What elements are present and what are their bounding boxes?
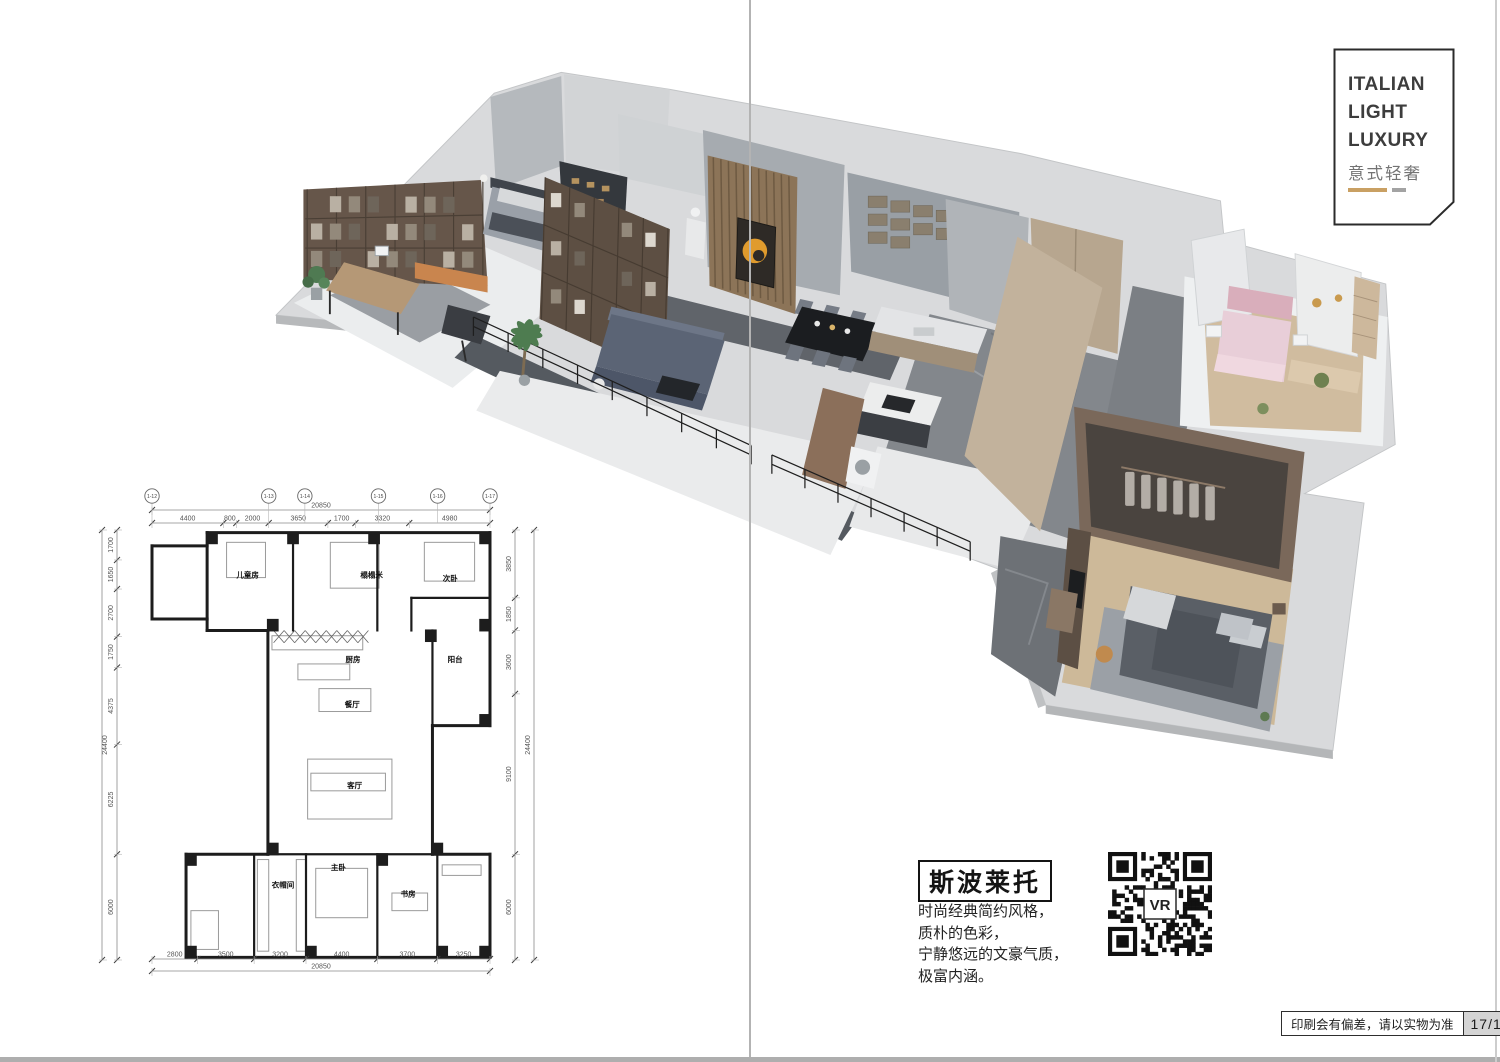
svg-text:3700: 3700 [400,952,416,959]
svg-text:3650: 3650 [291,516,307,523]
room-label: 衣帽间 [272,880,295,890]
svg-text:20850: 20850 [311,964,331,971]
svg-text:24400: 24400 [102,735,109,755]
svg-text:6000: 6000 [506,899,513,915]
vr-label: VR [1150,897,1171,914]
floor-plan-drawing: 儿童房榻榻米次卧厨房阳台餐厅客厅衣帽间主卧书房44008002000365017… [80,470,560,1010]
svg-text:4980: 4980 [442,516,458,523]
room-label: 榻榻米 [360,570,383,580]
product-desc-line: 质朴的色彩， [918,923,1068,945]
svg-text:1850: 1850 [506,606,513,622]
title-line1: ITALIAN [1348,74,1425,96]
svg-text:9100: 9100 [506,766,513,782]
accent-bar-gray [1392,188,1406,192]
product-desc-line: 宁静悠远的文豪气质， [918,944,1068,966]
svg-text:1-14: 1-14 [300,494,310,500]
vr-qr-code: VR [1108,852,1212,956]
svg-text:1700: 1700 [108,537,115,553]
svg-text:20850: 20850 [311,503,331,510]
page-bottom-edge [0,1057,1500,1062]
svg-text:6000: 6000 [108,899,115,915]
svg-text:4400: 4400 [334,952,350,959]
svg-text:24400: 24400 [525,735,532,755]
svg-text:3850: 3850 [506,556,513,572]
room-label: 主卧 [331,862,346,872]
product-desc-line: 极富内涵。 [918,966,1068,988]
page-fold-line [749,0,751,1062]
room-label: 客厅 [346,780,362,790]
svg-text:3320: 3320 [375,516,391,523]
svg-text:1-15: 1-15 [373,494,383,500]
svg-text:2000: 2000 [245,516,261,523]
svg-text:3250: 3250 [456,952,472,959]
room-label: 儿童房 [235,570,259,580]
svg-text:1-12: 1-12 [147,494,157,500]
svg-text:1700: 1700 [334,516,350,523]
product-name: 斯波莱托 [918,860,1052,902]
title-subtitle: 意式轻奢 [1348,160,1422,184]
title-line3: LUXURY [1348,130,1428,152]
product-description: 时尚经典简约风格， 质朴的色彩， 宁静悠远的文豪气质， 极富内涵。 [918,901,1068,987]
title-block: ITALIAN LIGHT LUXURY 意式轻奢 [1333,48,1457,226]
svg-text:3500: 3500 [218,952,234,959]
svg-text:1-16: 1-16 [433,494,443,500]
svg-text:4375: 4375 [108,698,115,714]
svg-text:6225: 6225 [108,792,115,808]
room-label: 次卧 [443,573,458,583]
room-label: 书房 [401,889,416,899]
product-desc-line: 时尚经典简约风格， [918,901,1068,923]
footer: 印刷会有偏差，请以实物为准 17/18 [1281,1011,1500,1036]
svg-text:4400: 4400 [180,516,196,523]
room-label: 餐厅 [344,699,360,709]
svg-text:1750: 1750 [108,644,115,660]
svg-text:1650: 1650 [108,567,115,583]
print-disclaimer: 印刷会有偏差，请以实物为准 [1281,1011,1464,1036]
svg-text:3200: 3200 [272,952,288,959]
accent-bar-gold [1348,188,1387,192]
page-number: 17/18 [1464,1011,1500,1036]
svg-text:2700: 2700 [108,605,115,621]
svg-text:800: 800 [224,516,236,523]
svg-text:1-17: 1-17 [485,494,495,500]
svg-text:2800: 2800 [167,952,183,959]
room-label: 阳台 [448,654,463,664]
svg-text:1-13: 1-13 [264,494,274,500]
svg-text:3600: 3600 [506,654,513,670]
title-line2: LIGHT [1348,102,1408,124]
page-right-edge [1495,0,1497,1062]
room-label: 厨房 [346,654,361,664]
